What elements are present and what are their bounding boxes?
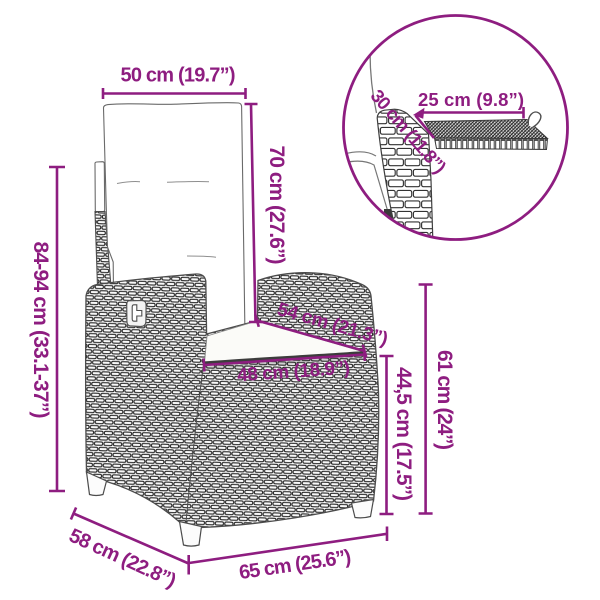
svg-text:25 cm (9.8”): 25 cm (9.8”) — [418, 89, 524, 110]
svg-text:50 cm (19.7”): 50 cm (19.7”) — [121, 65, 236, 87]
svg-text:61 cm (24”): 61 cm (24”) — [433, 350, 456, 450]
svg-text:44,5 cm (17.5”): 44,5 cm (17.5”) — [392, 367, 415, 501]
svg-text:84-94 cm (33.1-37”): 84-94 cm (33.1-37”) — [29, 242, 52, 419]
svg-text:70 cm (27.6”): 70 cm (27.6”) — [265, 146, 288, 265]
